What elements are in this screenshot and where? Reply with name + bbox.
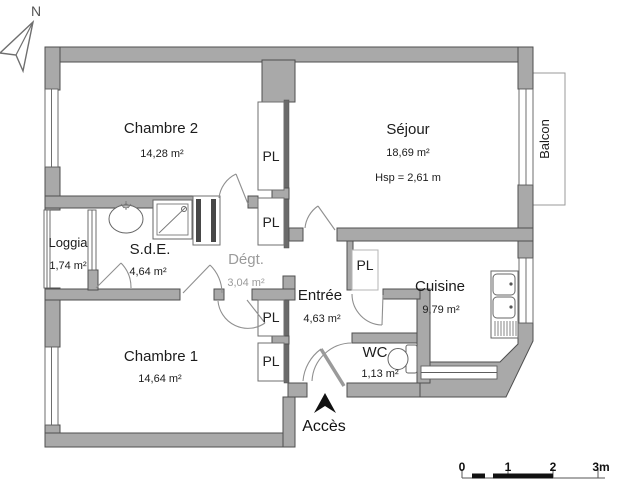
room-name-sde: S.d.E. bbox=[130, 241, 171, 258]
room-area-sde: 4,64 m² bbox=[129, 266, 167, 278]
wall-entree-corner bbox=[283, 276, 295, 289]
door-sejour bbox=[305, 206, 335, 230]
duct-bar bbox=[211, 199, 216, 242]
wall-pillar bbox=[262, 60, 295, 102]
access-arrow-icon bbox=[314, 393, 336, 413]
wall-stub bbox=[248, 196, 258, 208]
wall-bottom bbox=[45, 433, 295, 447]
duct-bar bbox=[196, 199, 201, 242]
room-name-sejour: Séjour bbox=[386, 121, 429, 138]
door-cuisine bbox=[352, 294, 383, 325]
closet-label: PL bbox=[262, 214, 279, 230]
wall-entry-side bbox=[283, 397, 295, 447]
closet-label: PL bbox=[356, 257, 373, 273]
room-name-loggia: Loggia bbox=[48, 235, 88, 250]
room-ceiling-sejour: Hsp = 2,61 m bbox=[375, 172, 441, 184]
room-area-chambre1: 14,64 m² bbox=[138, 373, 182, 385]
room-area-wc: 1,13 m² bbox=[361, 368, 399, 380]
room-area-loggia: 1,74 m² bbox=[49, 260, 87, 272]
wall-sejour-left bbox=[284, 100, 289, 248]
scale-bar: 0 1 2 3m bbox=[459, 460, 610, 479]
door-entrance bbox=[303, 349, 344, 386]
floor-plan: Chambre 2 14,28 m² Séjour 18,69 m² Hsp =… bbox=[0, 0, 640, 480]
scale-tick-label: 1 bbox=[505, 460, 512, 474]
wall-chambre1-top bbox=[45, 289, 180, 300]
room-name-chambre2: Chambre 2 bbox=[124, 120, 198, 137]
room-name-cuisine: Cuisine bbox=[415, 278, 465, 295]
compass-arrow bbox=[0, 22, 33, 71]
room-name-balcon: Balcon bbox=[537, 119, 552, 159]
wall-sejour-bottom bbox=[337, 228, 533, 241]
room-area-chambre2: 14,28 m² bbox=[140, 148, 184, 160]
room-area-entree: 4,63 m² bbox=[303, 313, 341, 325]
wall-top-left-corner bbox=[45, 47, 60, 90]
wall-sejour-bottom-stub bbox=[289, 228, 303, 241]
wall-wc-top bbox=[352, 333, 420, 343]
wall-top-right-corner bbox=[518, 47, 533, 89]
scale-segment bbox=[472, 474, 485, 479]
door-wc bbox=[312, 343, 352, 381]
room-name-entree: Entrée bbox=[298, 287, 342, 304]
scale-segment bbox=[508, 474, 553, 479]
scale-tick-label: 0 bbox=[459, 460, 466, 474]
room-area-sejour: 18,69 m² bbox=[386, 147, 430, 159]
shower-icon bbox=[153, 200, 192, 239]
scale-tick-label: 3m bbox=[592, 460, 609, 474]
closet-label: PL bbox=[262, 309, 279, 325]
access-label: Accès bbox=[302, 418, 346, 435]
closet-label: PL bbox=[262, 148, 279, 164]
closet-box bbox=[258, 102, 284, 190]
north-label: N bbox=[31, 3, 41, 19]
wall-entry-stub bbox=[288, 383, 307, 397]
wall-wc-bottom bbox=[347, 383, 420, 397]
wall-chambre1-top-right bbox=[252, 289, 295, 300]
door-chambre2 bbox=[219, 174, 248, 204]
north-arrow-icon: N bbox=[0, 3, 41, 71]
walls bbox=[45, 47, 533, 447]
wall-stub bbox=[214, 289, 224, 300]
closet-label: PL bbox=[262, 353, 279, 369]
room-name-wc: WC bbox=[363, 344, 388, 361]
scale-tick-label: 2 bbox=[550, 460, 557, 474]
access-marker: Accès bbox=[302, 393, 346, 435]
room-area-degt: 3,04 m² bbox=[227, 277, 265, 289]
room-name-degt: Dégt. bbox=[228, 251, 264, 268]
scale-segment bbox=[493, 474, 508, 479]
door-loggia bbox=[96, 263, 131, 288]
kitchen-sink-icon bbox=[491, 271, 518, 338]
room-name-chambre1: Chambre 1 bbox=[124, 348, 198, 365]
room-labels: Chambre 2 14,28 m² Séjour 18,69 m² Hsp =… bbox=[48, 119, 552, 385]
wall-right-segment bbox=[518, 185, 533, 258]
room-area-cuisine: 9,79 m² bbox=[422, 304, 460, 316]
